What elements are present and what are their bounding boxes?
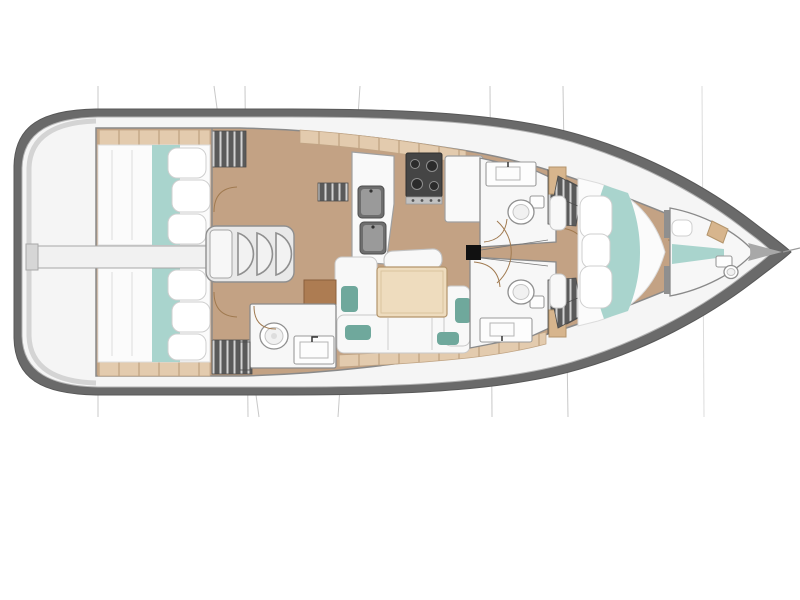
floor-plan-drawing xyxy=(0,0,800,600)
knob xyxy=(412,199,415,202)
mast xyxy=(466,245,481,260)
sink-basin xyxy=(490,323,514,336)
stove xyxy=(406,153,442,204)
bulkhead xyxy=(664,266,670,294)
pillow xyxy=(172,302,210,332)
pillow xyxy=(580,266,612,308)
companionway-stairs xyxy=(206,226,294,282)
pillow xyxy=(168,334,206,360)
wood-cabinet xyxy=(304,280,336,306)
pillow xyxy=(672,220,692,236)
locker xyxy=(212,131,246,167)
teal-cushion xyxy=(345,325,371,340)
hatch-vent xyxy=(318,183,348,201)
pillow xyxy=(168,214,206,244)
teal-cushion xyxy=(437,332,459,345)
burner xyxy=(427,161,438,172)
teal-cushion xyxy=(341,286,358,312)
pillow xyxy=(582,234,610,268)
toilet-bowl xyxy=(727,269,735,276)
locker xyxy=(240,342,250,370)
dining-table xyxy=(377,267,447,317)
toilet-center xyxy=(271,333,277,339)
faucet-dot xyxy=(369,189,372,192)
sink-basin xyxy=(300,342,328,358)
stove-knob-panel xyxy=(406,197,442,204)
toilet-bowl xyxy=(513,205,529,220)
stair-step xyxy=(210,230,232,278)
faucet-dot xyxy=(371,225,374,228)
seat xyxy=(550,274,566,308)
teal-cushion xyxy=(455,298,471,323)
pillow xyxy=(168,148,206,178)
sink-basin xyxy=(496,167,520,180)
burner xyxy=(412,179,423,190)
knob xyxy=(438,199,441,202)
burner xyxy=(430,182,439,191)
sink-basin-inner xyxy=(363,225,383,251)
knob xyxy=(421,199,424,202)
pillow xyxy=(580,196,612,238)
toilet-bowl xyxy=(513,285,529,300)
refrigerator-counter xyxy=(445,156,483,222)
knob xyxy=(430,199,433,202)
berth-shelf xyxy=(98,130,210,145)
pillow xyxy=(172,180,210,212)
engine-access-corridor xyxy=(26,246,208,268)
corridor-end-cap xyxy=(26,244,38,270)
stove-top xyxy=(406,153,442,197)
bulkhead xyxy=(664,210,670,238)
pillow xyxy=(168,270,206,300)
yacht-floor-plan xyxy=(0,0,800,600)
sink-basin-inner xyxy=(361,189,381,215)
berth-shelf xyxy=(98,362,210,376)
seat xyxy=(550,196,566,230)
burner xyxy=(411,160,420,169)
